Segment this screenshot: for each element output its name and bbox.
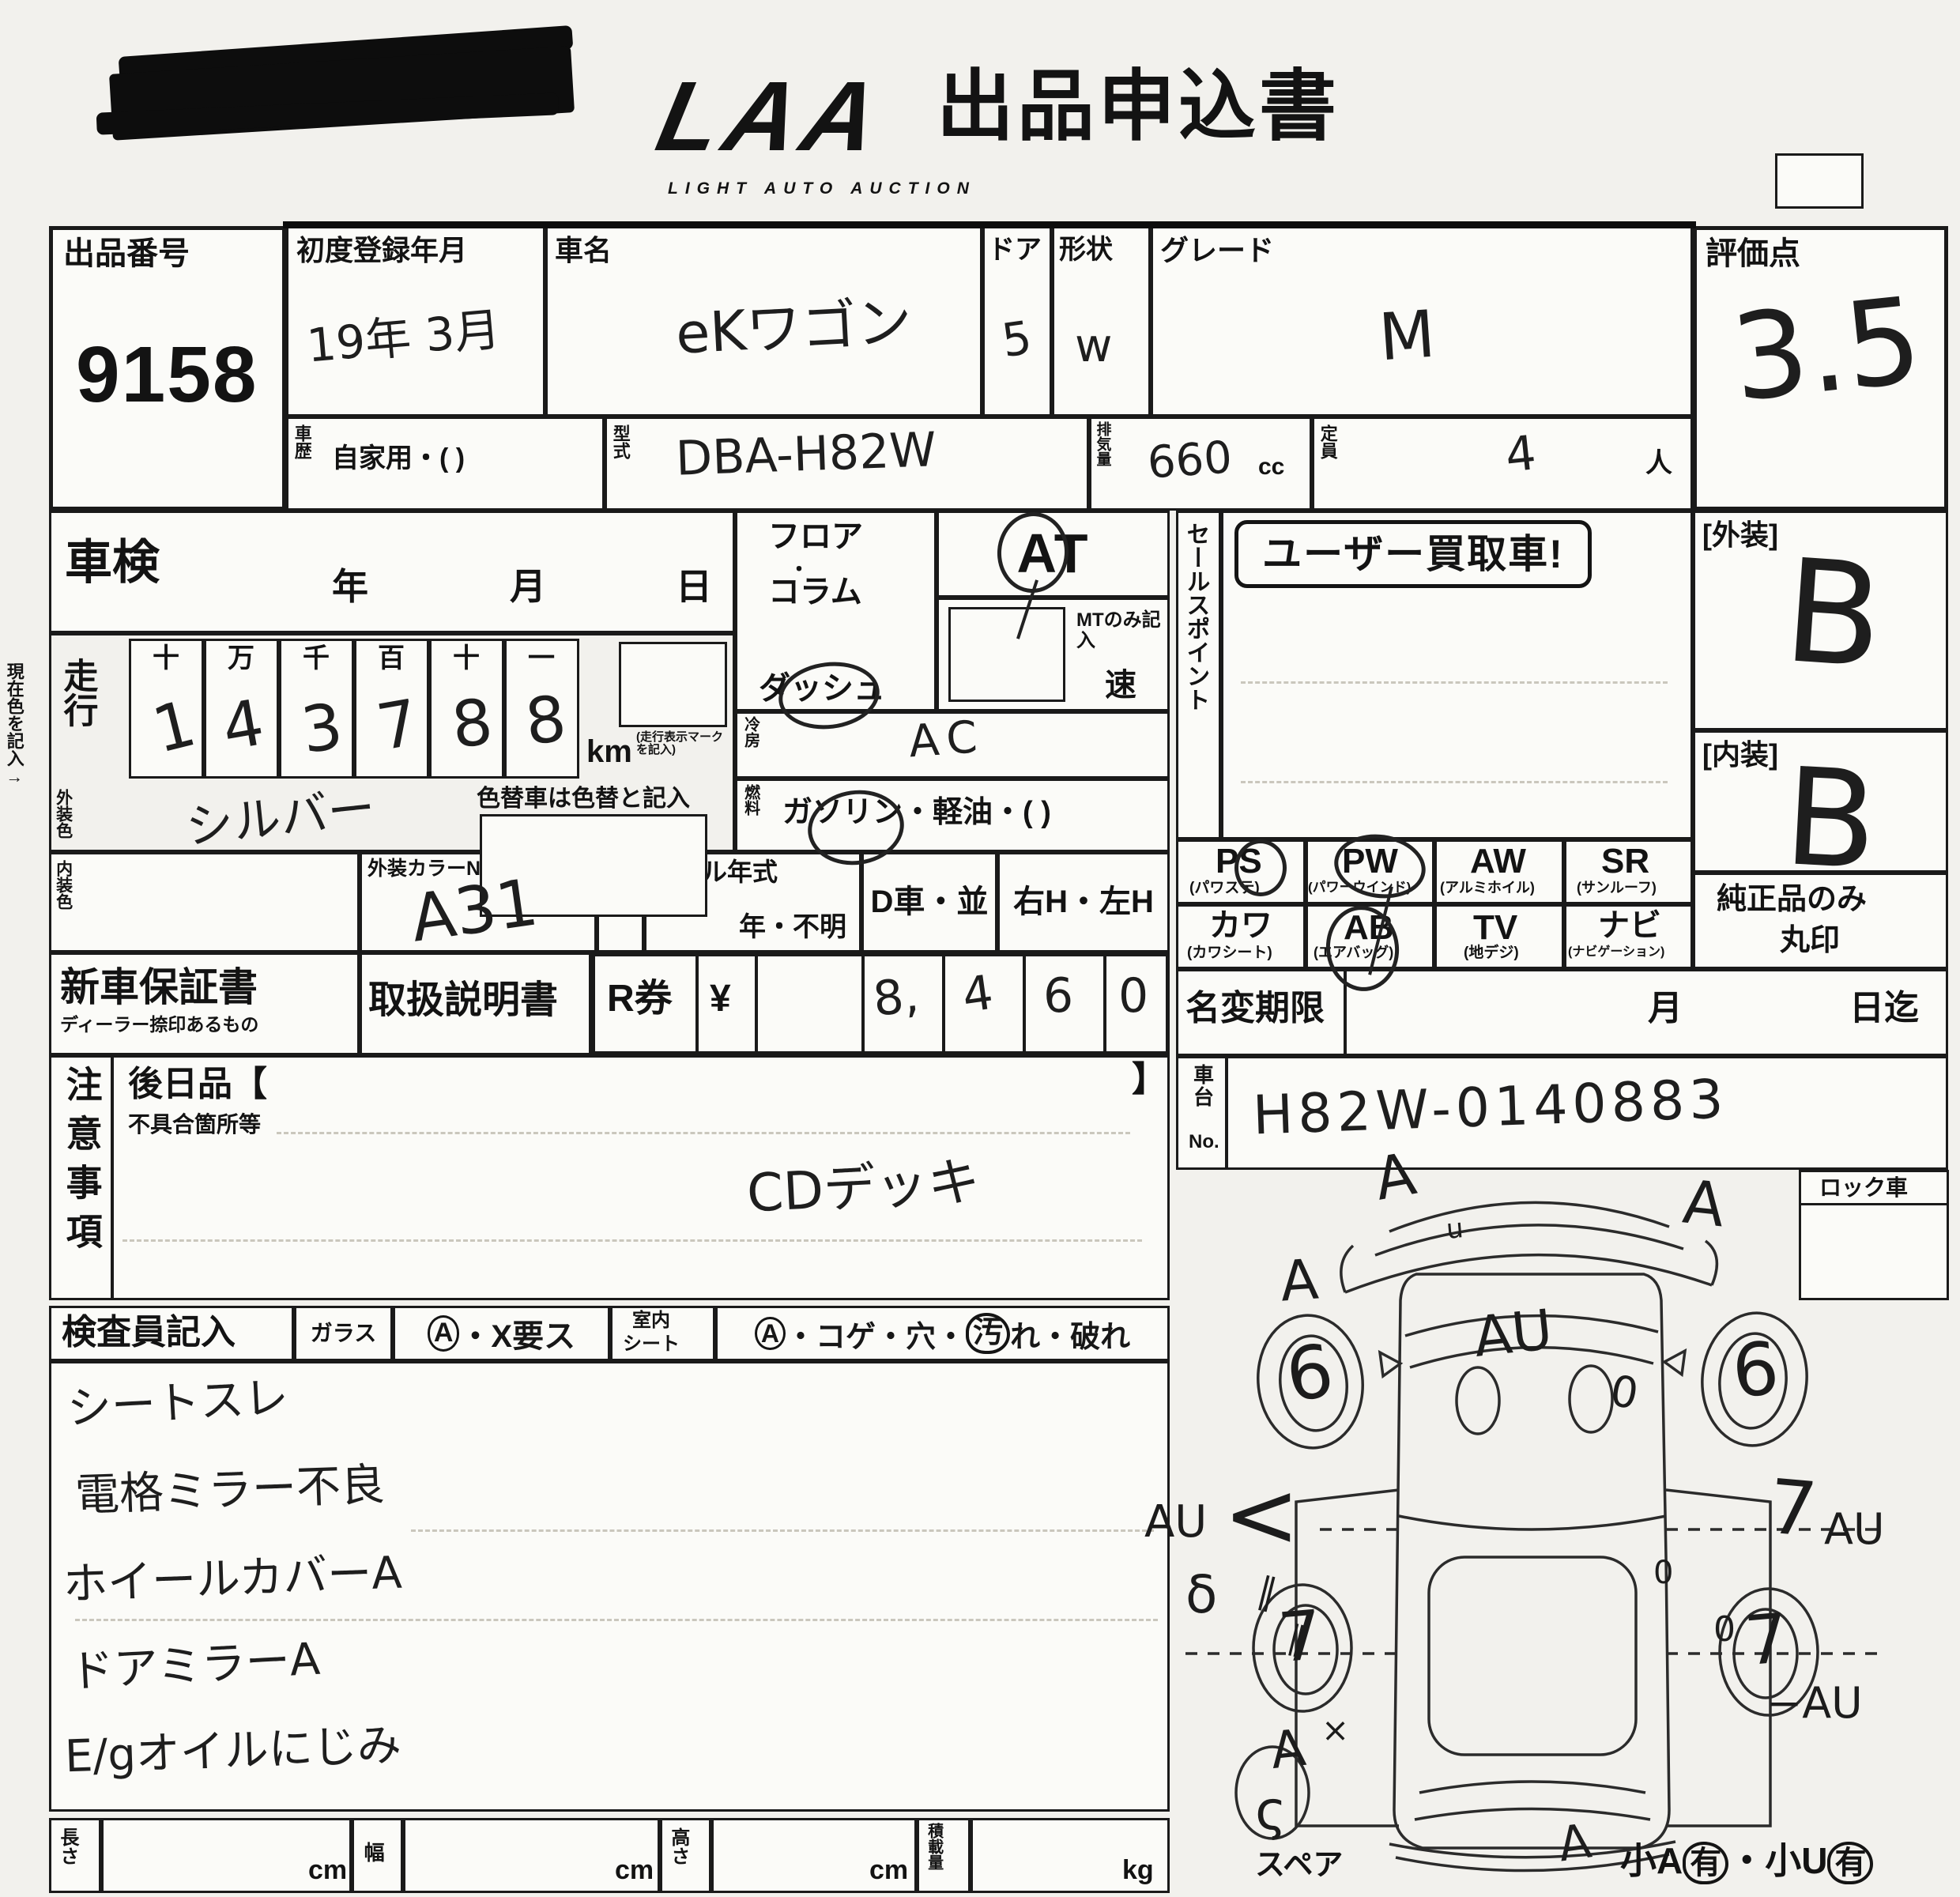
aircon-label: 冷房 [741,716,759,775]
name-change-until: 日迄 [1849,990,1919,1028]
mileage-header: 百 [378,644,405,673]
mileage-unit-note-2: を記入 [636,743,672,756]
diagram-mark: A [1680,1171,1728,1235]
load-label: 積載量 [925,1823,942,1891]
later-items-label: 後日品【 [128,1065,267,1103]
user-buyback-text: ユーザー買取車! [1262,533,1564,575]
yen-sign: ¥ [710,979,731,1020]
diagram-mark: 7 [1742,1605,1791,1676]
mileage-header: 十 [453,644,480,673]
mileage-digit: 8 [522,688,569,755]
legend-sep: ・ [1728,1840,1765,1881]
shift-line-floor: フロア [768,520,863,554]
grade-label: グレード [1160,236,1274,266]
first-reg-label: 初度登録年月 [296,236,467,266]
inspector-guide-1 [411,1529,1154,1532]
seat-option-a-circled: A [755,1317,786,1351]
diagram-mark: < [1223,1470,1299,1561]
capacity-value: 4 [1503,429,1538,480]
capacity-label: 定員 [1318,424,1337,503]
auction-no-value: 9158 [76,332,258,417]
stamp-box-empty [1775,153,1864,209]
inspector-note: E/gオイルにじみ [64,1724,401,1780]
mileage-label: 走行 [58,658,96,792]
legend-a-mark: A [1555,1817,1594,1869]
notes-guide-1 [277,1132,1130,1134]
diagram-mark: 0 [1653,1557,1673,1589]
handle-label: 右H・左H [1013,885,1154,919]
history-label: 車歴 [292,424,311,503]
inspector-note: 電格ミラー不良 [74,1463,386,1518]
equip-tv-abbr: TV [1473,909,1517,947]
auction-sheet: LAA LIGHT AUTO AUCTION 出品申込書 現在色を記入→ 出品番… [0,0,1960,1897]
warranty-label: 新車保証書 [60,966,258,1009]
car-name-value: eKワゴン [674,294,913,362]
r-ticket-digit: 0 [1118,972,1148,1020]
glass-cell: ガラス [294,1306,393,1361]
width-unit: cm [615,1856,654,1885]
length-unit: cm [308,1856,347,1885]
notes-label: 注意事項 [62,1065,101,1295]
seat-option-stain-circled: 汚 [966,1313,1010,1354]
diagram-mark: AU [1472,1302,1555,1365]
mt-speed-box [948,607,1065,702]
glass-options-text: ・X要ス [459,1311,575,1356]
mt-note: MTのみ記入 [1076,610,1163,651]
diagram-mark: −AU [1766,1682,1863,1725]
door-value: 5 [999,315,1035,364]
capacity-unit: 人 [1645,449,1672,478]
warranty-sub: ディーラー捺印あるもの [60,1015,258,1035]
seat-options-tail: れ・破れ [1010,1312,1130,1356]
grade-value: M [1377,303,1437,371]
chassis-value: H82W-0140883 [1252,1073,1729,1144]
r-div-5 [1103,955,1106,1053]
aircon-value: AC [907,715,986,765]
name-change-month: 月 [1648,990,1683,1028]
diagram-mark: AU [1144,1500,1207,1544]
diagram-mark: ς [1255,1785,1287,1839]
height-label: 高さ [668,1827,688,1887]
handle-cell: 右H・左H [997,852,1170,952]
inspector-guide-2 [75,1619,1158,1621]
displacement-unit: cc [1258,454,1284,480]
score-label: 評価点 [1706,237,1800,271]
page-title: 出品申込書 [937,65,1340,149]
glass-label: ガラス [311,1322,376,1345]
equip-navi-abbr: ナビ [1598,909,1661,943]
notes-div [111,1058,114,1298]
glass-option-a-circled: A [428,1315,460,1351]
length-label: 長さ [57,1827,77,1887]
car-damage-diagram: AuAAAU0AU<δ∥∥7AU00−AUA×ς6677 [1138,1130,1952,1881]
interior-grade-value: B [1781,750,1880,889]
ext-color-label: 外装色 [54,789,72,852]
equip-kawa-abbr: カワ [1209,909,1272,943]
d-car-label: D車・並 [871,885,989,919]
genuine-parts-line2: 丸印 [1780,925,1840,957]
r-ticket-label: R券 [607,979,673,1020]
displacement-label: 排気量 [1094,421,1110,507]
score-value: 3.5 [1727,281,1927,419]
r-div-2 [861,955,865,1053]
manual-label: 取扱説明書 [368,980,558,1021]
r-ticket-digit: 8, [871,971,921,1024]
seat-label-2: シート [623,1334,680,1355]
height-unit: cm [869,1856,908,1885]
color-no-value: A31 [407,870,541,952]
legend-text: 小A有・小U有 [1620,1842,1873,1884]
fuel-label: 燃料 [741,784,759,847]
r-ticket-digit: 6 [1043,972,1073,1020]
current-color-note: 現在色を記入→ [5,662,24,836]
r-div-4 [1023,955,1026,1053]
equip-tv-full: (地デジ) [1464,945,1519,962]
mileage-unit: km [586,735,632,769]
mileage-unit-note-1: 走行表示マーク [640,730,723,744]
auction-no-label: 出品番号 [63,237,190,271]
spare-label: スペア [1255,1850,1343,1882]
equip-aw-full: (アルミホイル) [1440,881,1535,896]
seat-options-text: ・コゲ・穴・ [786,1312,966,1356]
later-items-close: 】 [1132,1061,1167,1099]
defect-value: CDデッキ [745,1156,981,1220]
r-ticket-digit: 4 [959,969,996,1020]
model-code-value: DBA-H82W [675,426,937,482]
exterior-grade-value: B [1780,541,1887,689]
shaken-day: 日 [676,568,712,607]
defect-label: 不具合箇所等 [128,1113,261,1137]
diagram-mark: A [1268,1723,1308,1777]
int-color-cell [49,852,360,952]
legend-small-u: 小U [1765,1840,1827,1881]
mileage-digit: 8 [449,691,496,758]
int-color-label: 内装色 [54,860,72,947]
diagram-mark: 7 [1276,1601,1325,1673]
mileage-header: 十 [153,644,179,673]
d-car-cell: D車・並 [861,852,997,952]
mileage-header: 万 [228,644,254,673]
width-label: 幅 [362,1842,384,1889]
table-top-rule [283,221,1696,228]
legend-small-a: 小A [1620,1840,1683,1881]
model-code-label: 型式 [611,424,630,503]
mileage-digit: 3 [298,695,347,763]
legend-yu2-circled: 有 [1827,1842,1873,1884]
equip-sr-full: (サンルーフ) [1577,881,1657,896]
ps-circle-mark [1234,839,1287,896]
mileage-unit-note: (走行表示マークを記入) [636,731,723,756]
diagram-mark: × [1321,1714,1349,1747]
repaint-note: 色替車は色替と記入 [477,786,690,812]
user-buyback-stamp: ユーザー買取車! [1234,520,1592,588]
notes-guide-2 [122,1239,1142,1242]
sales-guide-1 [1241,681,1668,684]
shape-label: 形状 [1059,236,1113,265]
name-change-label: 名変期限 [1185,990,1325,1028]
laa-logo-subtitle: LIGHT AUTO AUCTION [668,180,976,198]
diagram-marks: AuAAAU0AU<δ∥∥7AU00−AUA×ς6677 [1138,1130,1952,1881]
interior-grade-label: [内装] [1702,740,1778,771]
glass-options-cell: A・X要ス [393,1306,610,1361]
seat-options-cell: A・コゲ・穴・汚れ・破れ [715,1306,1170,1361]
laa-logo: LAA [649,63,894,170]
diagram-mark: u [1445,1215,1464,1243]
mt-speed-label: 速 [1105,669,1136,703]
displacement-value: 660 [1146,436,1234,485]
mileage-mark-box [619,642,727,727]
diagram-mark: 0 [1713,1612,1736,1647]
inspector-note: シートスレ [66,1376,290,1432]
diagram-mark: 6 [1282,1334,1338,1412]
diagram-mark: 0 [1608,1369,1641,1416]
shift-line-column: コラム [768,575,862,609]
inspector-note: ドアミラーA [69,1638,322,1695]
r-div-3 [942,955,945,1053]
mileage-header: 千 [303,644,330,673]
equip-aw-abbr: AW [1470,843,1526,881]
shaken-month: 月 [510,568,546,607]
door-label: ドア [988,236,1042,265]
exterior-grade-label: [外装] [1702,520,1778,551]
seat-label-1: 室内 [632,1311,670,1331]
car-name-label: 車名 [555,236,612,266]
r-div-1 [755,955,758,1053]
chassis-label-top: 車台 [1184,1064,1223,1108]
shape-value: w [1075,322,1112,368]
diagram-mark: A [1370,1145,1420,1209]
equip-navi-full: (ナビゲーション) [1568,945,1664,959]
r-ticket-div [695,955,699,1053]
diagram-mark: AU [1824,1508,1884,1551]
diagram-mark: 7 [1766,1470,1820,1549]
inspector-note: ホイールカバーA [62,1552,402,1608]
equip-kawa-full: (カワシート) [1187,945,1272,962]
equip-sr-abbr: SR [1601,843,1649,881]
model-year-value: 年・不明 [739,913,846,942]
diagram-mark: A [1279,1251,1321,1309]
diagram-mark: δ [1185,1569,1217,1621]
mileage-header: 一 [528,644,555,673]
diagram-mark: 6 [1729,1333,1781,1409]
sales-point-label: セールスポイント [1182,522,1208,834]
history-value: 自家用・( ) [332,444,465,473]
inspector-label: 検査員記入 [62,1314,236,1352]
shaken-year: 年 [332,568,368,607]
legend-yu1-circled: 有 [1683,1842,1728,1884]
sales-guide-2 [1241,781,1668,783]
shaken-label: 車検 [65,537,160,589]
